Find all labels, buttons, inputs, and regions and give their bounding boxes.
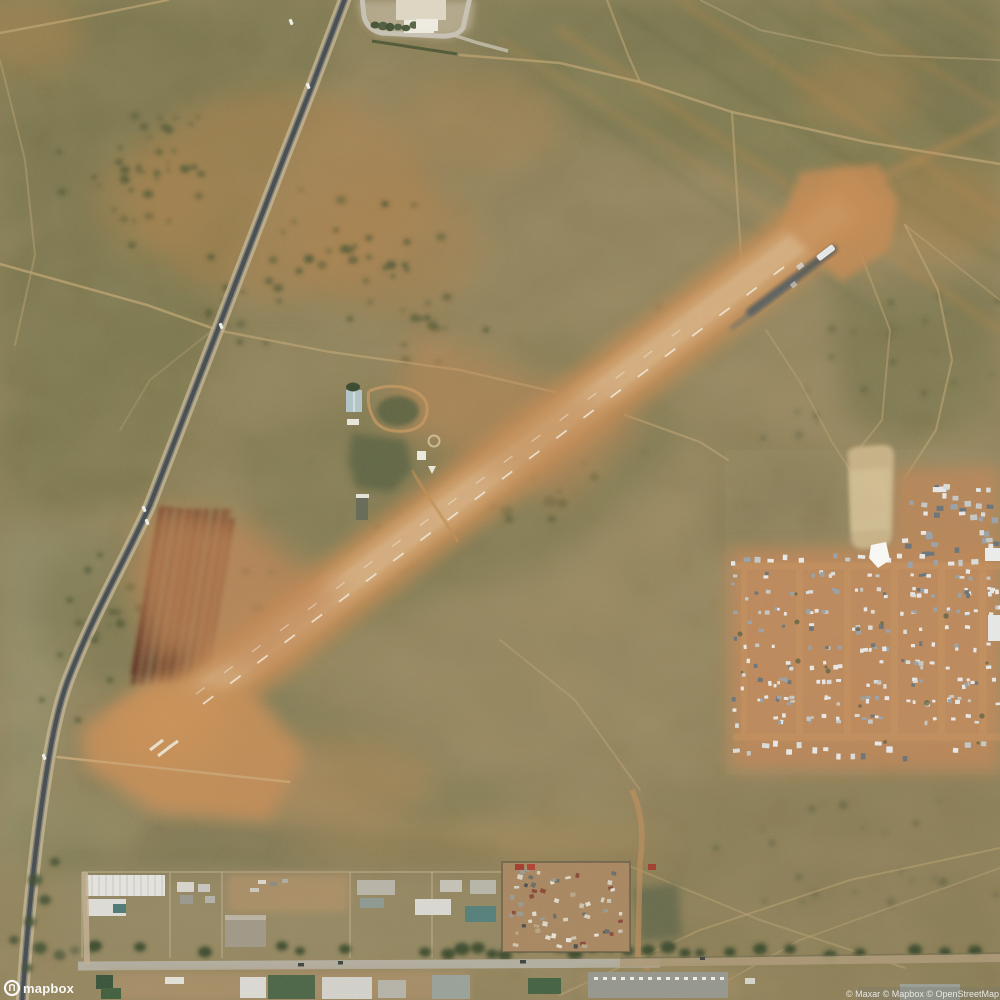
svg-text:© Maxar © Mapbox © OpenStreetM: © Maxar © Mapbox © OpenStreetMap <box>846 989 999 999</box>
svg-text:mapbox: mapbox <box>23 981 75 996</box>
